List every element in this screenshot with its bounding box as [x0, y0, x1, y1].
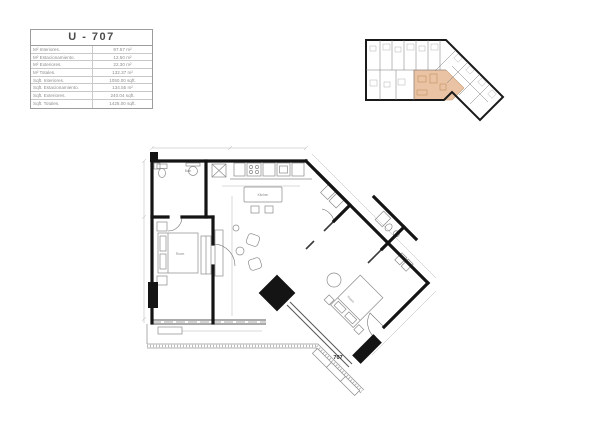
row-value: 22.30 m² [93, 62, 152, 67]
row-label: Sqft. Interiores. [31, 77, 93, 84]
table-row: Sqft. Totales. 1425.00 sqft. [31, 100, 152, 108]
bath-label: Bath [185, 169, 192, 173]
row-value: 1425.00 sqft. [93, 101, 152, 106]
balcony-planters [158, 327, 360, 396]
table-row: Sqft. Exteriores. 240.04 sqft. [31, 92, 152, 100]
row-label: Sqft. Totales. [31, 100, 93, 108]
unit-title: U - 707 [31, 30, 152, 46]
row-value: 132.37 m² [93, 70, 152, 75]
key-plan [350, 28, 510, 128]
row-value: 134.55 m² [93, 85, 152, 90]
table-row: M² Interiores. 97.57 m² [31, 46, 152, 54]
row-value: 240.04 sqft. [93, 93, 152, 98]
table-row: M² Estacionamiento. 12.50 m² [31, 54, 152, 62]
door-swings [168, 209, 384, 337]
bedroom2-label: Room [346, 295, 355, 304]
plan-sheet: U - 707 M² Interiores. 97.57 m² M² Estac… [0, 0, 608, 429]
row-label: M² Estacionamiento. [31, 54, 93, 61]
table-row: M² Exteriores. 22.30 m² [31, 61, 152, 69]
row-label: M² Totales. [31, 69, 93, 76]
table-row: M² Totales. 132.37 m² [31, 69, 152, 77]
row-label: Sqft. Exteriores. [31, 92, 93, 99]
table-row: Sqft. Interiores. 1050.00 sqft. [31, 77, 152, 85]
bedroom1-label: Room [176, 252, 185, 256]
row-value: 1050.00 sqft. [93, 78, 152, 83]
row-label: Sqft. Estacionamiento. [31, 84, 93, 91]
walls [152, 161, 428, 345]
row-label: M² Exteriores. [31, 61, 93, 68]
table-row: Sqft. Estacionamiento. 134.55 m² [31, 84, 152, 92]
furniture [154, 163, 413, 335]
row-value: 12.50 m² [93, 55, 152, 60]
floor-plan: Bath Kitchen Room Room 707 [138, 138, 450, 400]
balcony-railing [147, 324, 364, 393]
kitchen-label: Kitchen [258, 193, 269, 197]
unit-info-table: U - 707 M² Interiores. 97.57 m² M² Estac… [30, 29, 153, 109]
row-value: 97.57 m² [93, 47, 152, 52]
unit-number-label: 707 [333, 355, 342, 361]
columns [148, 152, 382, 364]
row-label: M² Interiores. [31, 46, 93, 53]
